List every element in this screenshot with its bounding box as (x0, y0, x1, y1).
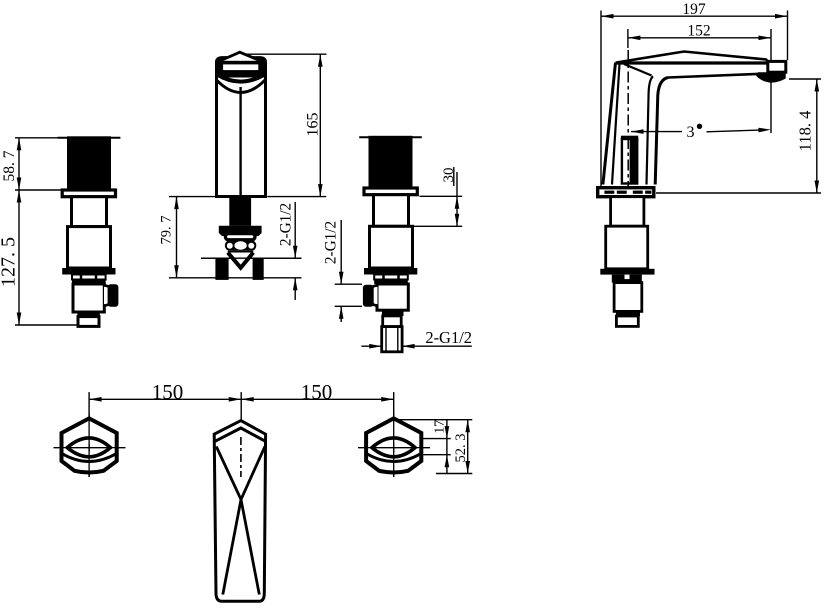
svg-text:197: 197 (682, 1, 706, 18)
svg-text:30: 30 (441, 168, 457, 183)
svg-text:152: 152 (687, 23, 710, 40)
svg-text:150: 150 (152, 380, 184, 404)
svg-text:165: 165 (305, 113, 322, 137)
svg-text:52. 3: 52. 3 (453, 434, 469, 463)
svg-text:2-G1/2: 2-G1/2 (425, 328, 472, 347)
svg-text:2-G1/2: 2-G1/2 (323, 221, 340, 264)
svg-text:118. 4: 118. 4 (796, 111, 815, 152)
svg-text:3: 3 (687, 124, 695, 141)
svg-text:127. 5: 127. 5 (0, 237, 20, 287)
svg-text:58. 7: 58. 7 (1, 150, 18, 181)
svg-text:17: 17 (433, 420, 448, 434)
svg-text:2-G1/2: 2-G1/2 (278, 203, 295, 246)
svg-text:79. 7: 79. 7 (159, 216, 175, 245)
svg-text:150: 150 (301, 380, 333, 404)
